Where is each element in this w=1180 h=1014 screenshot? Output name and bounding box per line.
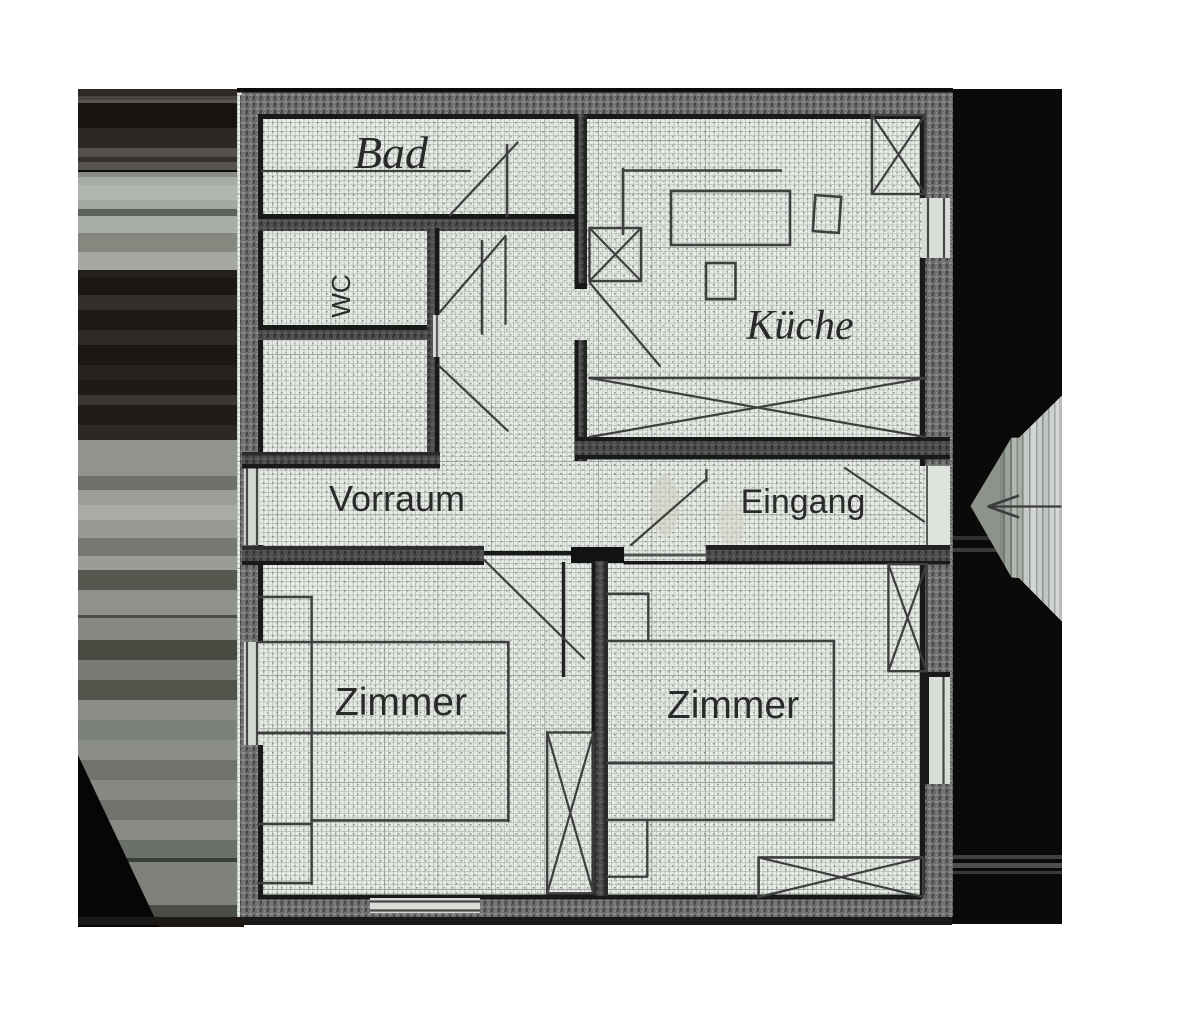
svg-text:Zimmer: Zimmer — [335, 681, 467, 724]
svg-text:Bad: Bad — [354, 127, 429, 178]
svg-text:Eingang: Eingang — [741, 483, 866, 521]
svg-text:Küche: Küche — [745, 303, 853, 349]
svg-text:WC: WC — [326, 274, 356, 317]
svg-text:Zimmer: Zimmer — [667, 684, 799, 727]
svg-text:Vorraum: Vorraum — [329, 478, 465, 519]
